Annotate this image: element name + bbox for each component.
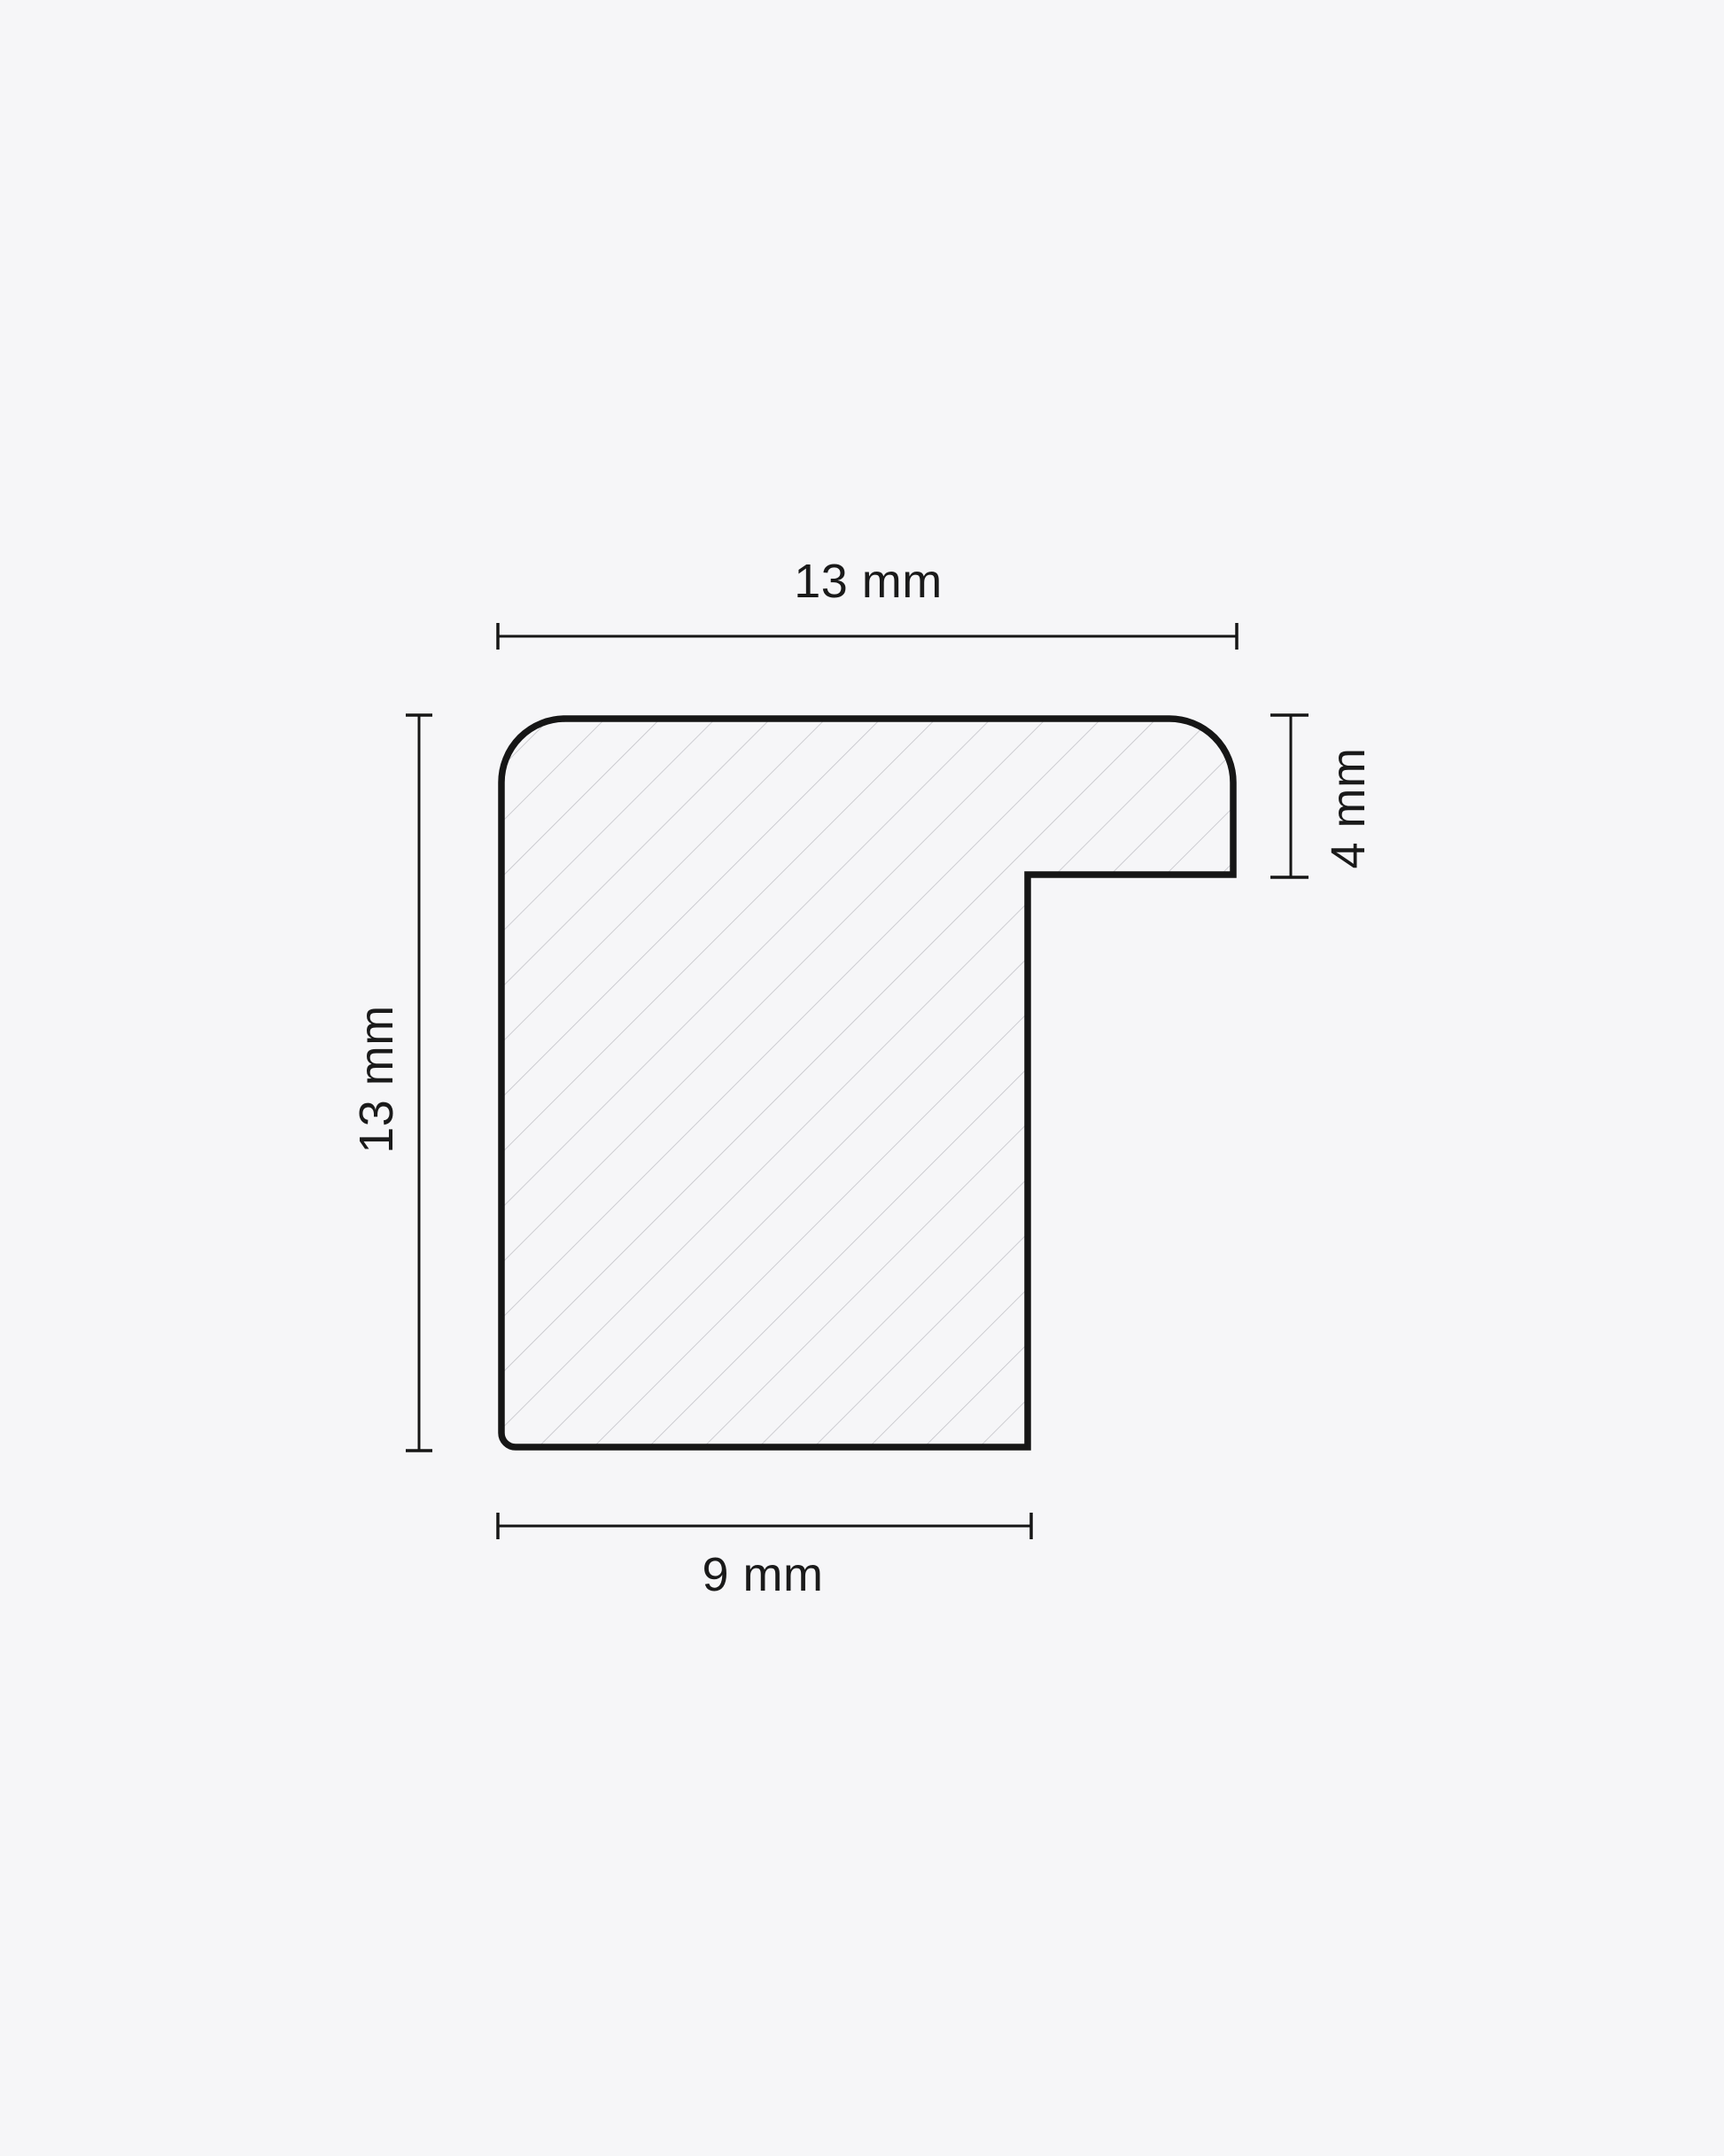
- profile-cross-section-svg: 13 mm 13 mm 4 mm 9 mm: [0, 0, 1724, 2156]
- technical-drawing-canvas: 13 mm 13 mm 4 mm 9 mm: [0, 0, 1724, 2156]
- profile-shape-group: [501, 719, 1233, 1447]
- dimension-label-bottom: 9 mm: [703, 1548, 824, 1601]
- dimension-label-left: 13 mm: [350, 1005, 403, 1154]
- dimension-label-right: 4 mm: [1322, 748, 1375, 869]
- dimension-top: [498, 623, 1237, 650]
- dimension-left: [406, 715, 432, 1451]
- dimension-bottom: [498, 1513, 1031, 1539]
- dimension-right: [1270, 715, 1309, 877]
- moulding-profile-shape: [501, 719, 1233, 1447]
- dimension-label-top: 13 mm: [794, 555, 943, 608]
